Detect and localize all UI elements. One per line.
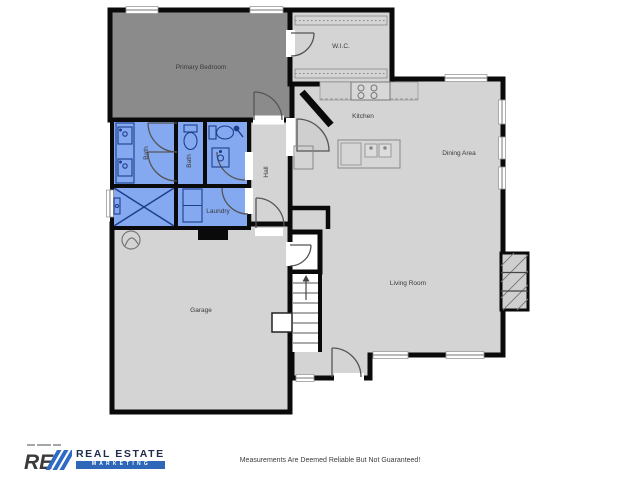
- label-primary-bedroom: Primary Bedroom: [176, 64, 227, 71]
- floorplan-drawing: Primary Bedroom W.I.C. Kitchen Dining Ar…: [0, 0, 640, 480]
- fireplace: [501, 253, 528, 310]
- kitchen-island: [338, 140, 400, 168]
- label-garage: Garage: [190, 307, 212, 314]
- staircase: [293, 270, 321, 352]
- company-logo: RE REAL ESTATE MARKETING: [24, 442, 165, 474]
- understairs-closet: [272, 313, 292, 332]
- room-shower: [112, 186, 176, 228]
- logo-real-estate-text: REAL ESTATE: [76, 449, 165, 460]
- label-kitchen: Kitchen: [352, 113, 374, 120]
- measurements-disclaimer: Measurements Are Deemed Reliable But Not…: [180, 457, 480, 464]
- room-bath-small: [176, 120, 205, 186]
- label-hall: Hall: [263, 166, 270, 178]
- label-wic: W.I.C.: [332, 43, 350, 50]
- label-living-room: Living Room: [390, 280, 426, 287]
- logo-re-mark-icon: RE: [24, 442, 72, 474]
- label-bath-primary: Bath: [143, 146, 150, 160]
- floorplan-page: Primary Bedroom W.I.C. Kitchen Dining Ar…: [0, 0, 640, 480]
- stove-icon: [351, 82, 390, 100]
- label-dining-area: Dining Area: [442, 150, 476, 157]
- svg-text:RE: RE: [24, 451, 54, 474]
- label-bath-hall: Bath: [186, 154, 193, 168]
- kitchen-counter: [320, 82, 418, 100]
- logo-marketing-band: MARKETING: [76, 461, 165, 469]
- room-garage: [112, 222, 290, 412]
- label-laundry: Laundry: [206, 208, 230, 215]
